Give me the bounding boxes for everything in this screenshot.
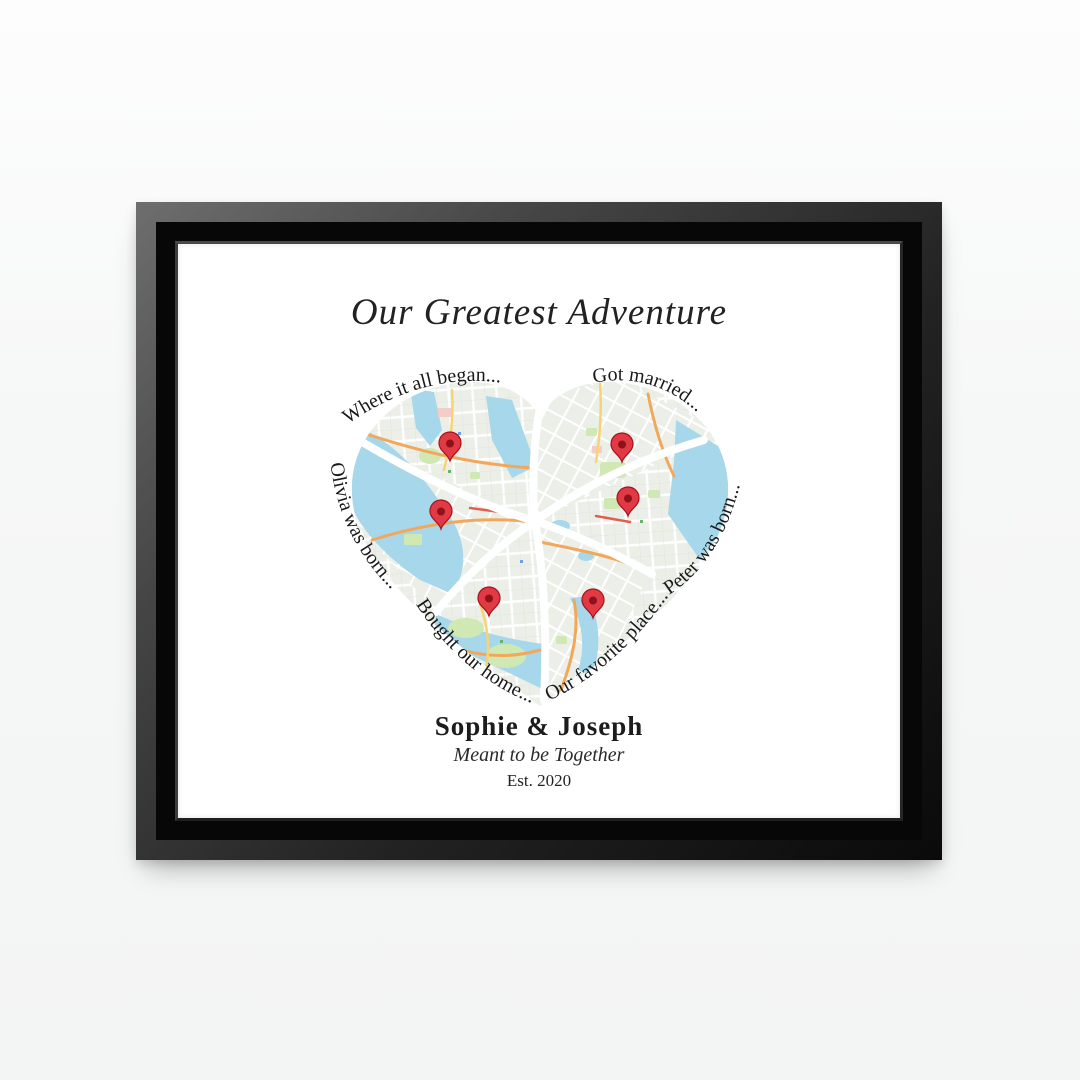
product-photo: Our Greatest Adventure Sophie & Joseph M… <box>0 0 1080 1080</box>
tagline: Meant to be Together <box>178 744 900 767</box>
print-title: Our Greatest Adventure <box>178 291 900 334</box>
established-year: Est. 2020 <box>178 771 900 791</box>
couple-names: Sophie & Joseph <box>178 711 900 742</box>
